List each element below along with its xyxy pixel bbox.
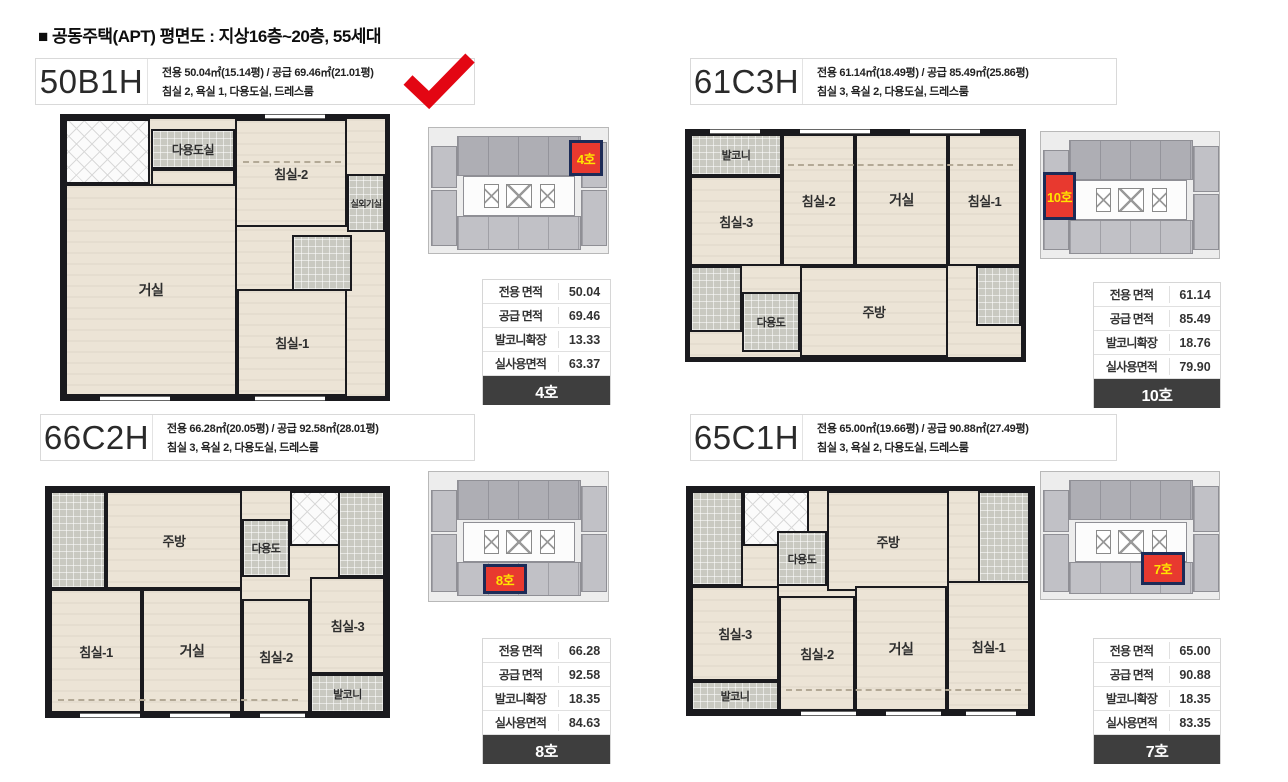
unit-name-66c2h: 66C2H: [41, 415, 153, 460]
room-bedroom-2: 침실-2: [242, 599, 310, 713]
unit-spec-rooms: 침실 2, 욕실 1, 다용도실, 드레스룸: [162, 83, 374, 102]
room-living: 거실: [855, 134, 948, 266]
table-row: 발코니확장 18.76: [1094, 331, 1220, 355]
table-row: 공급 면적 92.58: [483, 663, 610, 687]
bathroom: [978, 491, 1030, 583]
window-marker: [886, 711, 941, 716]
elevator-icon: [484, 530, 499, 554]
elevator-icon: [484, 184, 499, 208]
keyplan-top-units: [457, 136, 581, 176]
area-table-65c1h: 전용 면적 65.00 공급 면적 90.88 발코니확장 18.35 실사용면…: [1093, 638, 1221, 764]
room-bedroom-3: 침실-3: [691, 586, 779, 681]
window-marker: [170, 713, 230, 718]
unit-name-61c3h: 61C3H: [691, 59, 803, 104]
window-marker: [80, 713, 140, 718]
keyplan-wing: [431, 534, 457, 592]
unit-header-61c3h: 61C3H 전용 61.14㎡(18.49평) / 공급 85.49㎡(25.8…: [690, 58, 1117, 105]
unit-number-badge: 8호: [483, 735, 610, 764]
extension-dash-line: [243, 161, 341, 163]
keyplan-bottom-units: [457, 216, 581, 250]
keyplan-wing: [581, 486, 607, 532]
unit-header-66c2h: 66C2H 전용 66.28㎡(20.05평) / 공급 92.58㎡(28.0…: [40, 414, 475, 461]
room-bedroom-1: 침실-1: [50, 589, 142, 713]
keyplan-wing: [431, 490, 457, 532]
table-row: 실사용면적 83.35: [1094, 711, 1220, 735]
room-living: 거실: [65, 184, 237, 396]
keyplan-highlight-10ho: 10호: [1043, 172, 1076, 220]
elevator-icon: [540, 184, 555, 208]
unit-header-65c1h: 65C1H 전용 65.00㎡(19.66평) / 공급 90.88㎡(27.4…: [690, 414, 1117, 461]
keyplan-wing: [581, 534, 607, 592]
table-row: 실사용면적 79.90: [1094, 355, 1220, 379]
room-utility: 다용도: [742, 292, 800, 352]
window-marker: [255, 396, 325, 401]
table-row: 전용 면적 61.14: [1094, 283, 1220, 307]
keyplan-wing: [1193, 146, 1219, 192]
check-mark-icon: [398, 50, 478, 110]
unit-number-badge: 4호: [483, 376, 610, 405]
extension-dash-line: [786, 689, 1021, 691]
unit-spec-65c1h: 전용 65.00㎡(19.66평) / 공급 90.88㎡(27.49평) 침실…: [803, 415, 1029, 460]
elevator-icon: [1096, 530, 1111, 554]
keyplan-highlight-4ho: 4호: [569, 140, 603, 176]
entry-closet: [290, 491, 340, 546]
window-marker: [910, 129, 980, 134]
room-bedroom-3: 침실-3: [690, 176, 782, 266]
keyplan-wing: [1193, 194, 1219, 250]
bathroom: [292, 235, 352, 291]
table-row: 실사용면적 84.63: [483, 711, 610, 735]
elevator-icon: [1118, 188, 1144, 212]
unit-spec-area: 전용 66.28㎡(20.05평) / 공급 92.58㎡(28.01평): [167, 420, 379, 439]
key-plan-66c2h: 8호: [428, 471, 609, 602]
unit-spec-area: 전용 50.04㎡(15.14평) / 공급 69.46㎡(21.01평): [162, 64, 374, 83]
unit-spec-rooms: 침실 3, 욕실 2, 다용도실, 드레스룸: [167, 439, 379, 458]
extension-dash-line: [58, 699, 298, 701]
keyplan-wing: [1193, 534, 1219, 592]
table-row: 공급 면적 90.88: [1094, 663, 1220, 687]
unit-spec-area: 전용 61.14㎡(18.49평) / 공급 85.49㎡(25.86평): [817, 64, 1029, 83]
floor-plan-65c1h: 다용도 주방 침실-3 발코니 침실-2 거실 침실-1: [686, 486, 1035, 716]
area-table-66c2h: 전용 면적 66.28 공급 면적 92.58 발코니확장 18.35 실사용면…: [482, 638, 611, 764]
room-kitchen: 주방: [106, 491, 242, 589]
keyplan-corridor: [1075, 180, 1187, 220]
unit-spec-rooms: 침실 3, 욕실 2, 다용도실, 드레스룸: [817, 439, 1029, 458]
keyplan-wing: [1193, 486, 1219, 532]
window-marker: [800, 129, 870, 134]
room-utility: 다용도: [777, 531, 827, 586]
bathroom: [976, 266, 1021, 326]
keyplan-top-units: [1069, 140, 1193, 180]
keyplan-wing: [1043, 490, 1069, 532]
room-bedroom-1: 침실-1: [947, 581, 1030, 711]
room-balcony: 발코니: [691, 681, 779, 711]
room-utility: 다용도실: [151, 129, 235, 169]
table-row: 공급 면적 69.46: [483, 304, 610, 328]
unit-spec-50b1h: 전용 50.04㎡(15.14평) / 공급 69.46㎡(21.01평) 침실…: [148, 59, 374, 104]
room-living: 거실: [855, 586, 947, 711]
keyplan-wing: [431, 146, 457, 188]
unit-spec-area: 전용 65.00㎡(19.66평) / 공급 90.88㎡(27.49평): [817, 420, 1029, 439]
window-marker: [801, 711, 856, 716]
unit-name-65c1h: 65C1H: [691, 415, 803, 460]
table-row: 전용 면적 66.28: [483, 639, 610, 663]
room-kitchen: 주방: [800, 266, 948, 357]
elevator-icon: [506, 530, 532, 554]
table-row: 실사용면적 63.37: [483, 352, 610, 376]
table-row: 발코니확장 13.33: [483, 328, 610, 352]
keyplan-bottom-units: [1069, 220, 1193, 254]
unit-number-badge: 7호: [1094, 735, 1220, 764]
bathroom: [338, 491, 385, 577]
window-marker: [100, 396, 170, 401]
bathroom: [690, 266, 742, 332]
entry-closet: [65, 119, 150, 184]
floor-plan-61c3h: 발코니 침실-3 침실-2 거실 침실-1 다용도 주방: [685, 129, 1026, 362]
area-table-50b1h: 전용 면적 50.04 공급 면적 69.46 발코니확장 13.33 실사용면…: [482, 279, 611, 405]
key-plan-50b1h: 4호: [428, 127, 609, 254]
room-bedroom-1: 침실-1: [237, 289, 347, 396]
key-plan-61c3h: 10호: [1040, 131, 1220, 259]
elevator-icon: [1152, 530, 1167, 554]
room-living: 거실: [142, 589, 242, 713]
room-bedroom-2: 침실-2: [779, 596, 855, 711]
unit-name-50b1h: 50B1H: [36, 59, 148, 104]
window-marker: [966, 711, 1016, 716]
room-outdoor-unit: 실외기실: [347, 174, 385, 232]
keyplan-wing: [1043, 534, 1069, 592]
elevator-icon: [506, 184, 532, 208]
keyplan-highlight-8ho: 8호: [483, 564, 527, 594]
elevator-icon: [1096, 188, 1111, 212]
keyplan-wing: [581, 190, 607, 246]
area-table-61c3h: 전용 면적 61.14 공급 면적 85.49 발코니확장 18.76 실사용면…: [1093, 282, 1221, 408]
keyplan-corridor: [463, 176, 575, 216]
page-title: ■ 공동주택(APT) 평면도 : 지상16층~20층, 55세대: [38, 22, 381, 47]
keyplan-highlight-7ho: 7호: [1141, 552, 1185, 585]
keyplan-corridor: [463, 522, 575, 562]
room-bedroom-1: 침실-1: [948, 134, 1021, 266]
window-marker: [710, 129, 760, 134]
keyplan-wing: [431, 190, 457, 246]
elevator-icon: [1118, 530, 1144, 554]
room-bedroom-2: 침실-2: [235, 119, 347, 227]
keyplan-top-units: [457, 480, 581, 520]
room-balcony: 발코니: [690, 134, 782, 176]
unit-spec-66c2h: 전용 66.28㎡(20.05평) / 공급 92.58㎡(28.01평) 침실…: [153, 415, 379, 460]
unit-number-badge: 10호: [1094, 379, 1220, 408]
room-kitchen: 주방: [827, 491, 949, 591]
unit-spec-61c3h: 전용 61.14㎡(18.49평) / 공급 85.49㎡(25.86평) 침실…: [803, 59, 1029, 104]
table-row: 발코니확장 18.35: [483, 687, 610, 711]
table-row: 전용 면적 50.04: [483, 280, 610, 304]
elevator-icon: [1152, 188, 1167, 212]
floor-plan-66c2h: 주방 다용도 침실-1 거실 침실-2 침실-3 발코니: [45, 486, 390, 718]
window-marker: [265, 114, 325, 119]
bathroom: [691, 491, 743, 586]
room-bedroom-3: 침실-3: [310, 577, 385, 674]
extension-dash-line: [788, 164, 1013, 166]
table-row: 발코니확장 18.35: [1094, 687, 1220, 711]
room-utility: 다용도: [242, 519, 290, 577]
bathroom: [50, 491, 106, 589]
keyplan-top-units: [1069, 480, 1193, 520]
table-row: 전용 면적 65.00: [1094, 639, 1220, 663]
key-plan-65c1h: 7호: [1040, 471, 1220, 600]
table-row: 공급 면적 85.49: [1094, 307, 1220, 331]
window-marker: [260, 713, 305, 718]
room-bedroom-2: 침실-2: [782, 134, 855, 266]
floor-plan-50b1h: 다용도실 주방 침실-2 실외기실 거실 침실-1: [60, 114, 390, 401]
room-balcony: 발코니: [310, 674, 385, 713]
unit-spec-rooms: 침실 3, 욕실 2, 다용도실, 드레스룸: [817, 83, 1029, 102]
elevator-icon: [540, 530, 555, 554]
